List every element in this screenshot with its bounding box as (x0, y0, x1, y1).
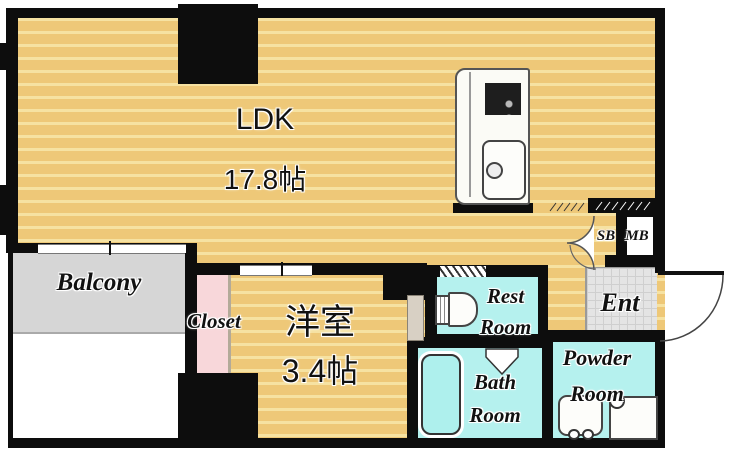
rest-room-line2: Room (443, 312, 568, 343)
western-room-size-label: 3.4帖 (240, 346, 400, 392)
washbasin-tap-left (568, 429, 580, 440)
balcony-label: Balcony (13, 269, 185, 297)
rest-room-line1: Rest (443, 281, 568, 312)
entrance-door-leaf (658, 271, 724, 275)
entrance-door-swing (660, 275, 723, 341)
washbasin-tap-right (582, 429, 594, 440)
left-window-stub-bottom (0, 185, 6, 235)
powder-room-line2: Room (537, 376, 657, 412)
pillar-top (178, 4, 258, 84)
wall-left-lower (8, 253, 13, 448)
kitchen-counter-edge (469, 72, 471, 197)
kitchen-stove-icon (485, 83, 521, 115)
western-room-opening (240, 265, 312, 276)
meter-box-label: MB (621, 228, 653, 245)
powder-room-label: Powder Room (537, 340, 657, 412)
entrance-label: Ent (585, 288, 655, 318)
balcony-window (38, 244, 186, 254)
wall-sbmb-top (588, 198, 665, 213)
western-room-door (407, 295, 424, 341)
wall-top (8, 8, 665, 18)
ldk-size-label: 17.8帖 (165, 158, 365, 198)
left-window-stub-top (0, 43, 7, 70)
kitchen-unit (455, 68, 530, 205)
shoe-box-label: SB (592, 228, 620, 245)
wall-bottom (8, 438, 665, 448)
western-room-label: 洋室 (240, 294, 400, 345)
ldk-label: LDK (185, 103, 345, 137)
kitchen-sink-icon (482, 140, 526, 200)
powder-room-line1: Powder (537, 340, 657, 376)
rest-room-label: Rest Room (443, 281, 568, 343)
wall-left-upper (6, 8, 18, 253)
rest-room-door (440, 266, 486, 277)
balcony-area: Balcony (13, 253, 185, 438)
kitchen-faucet-icon (486, 162, 503, 179)
floor-plan: Balcony (0, 0, 731, 451)
closet-label: Closet (164, 309, 264, 334)
